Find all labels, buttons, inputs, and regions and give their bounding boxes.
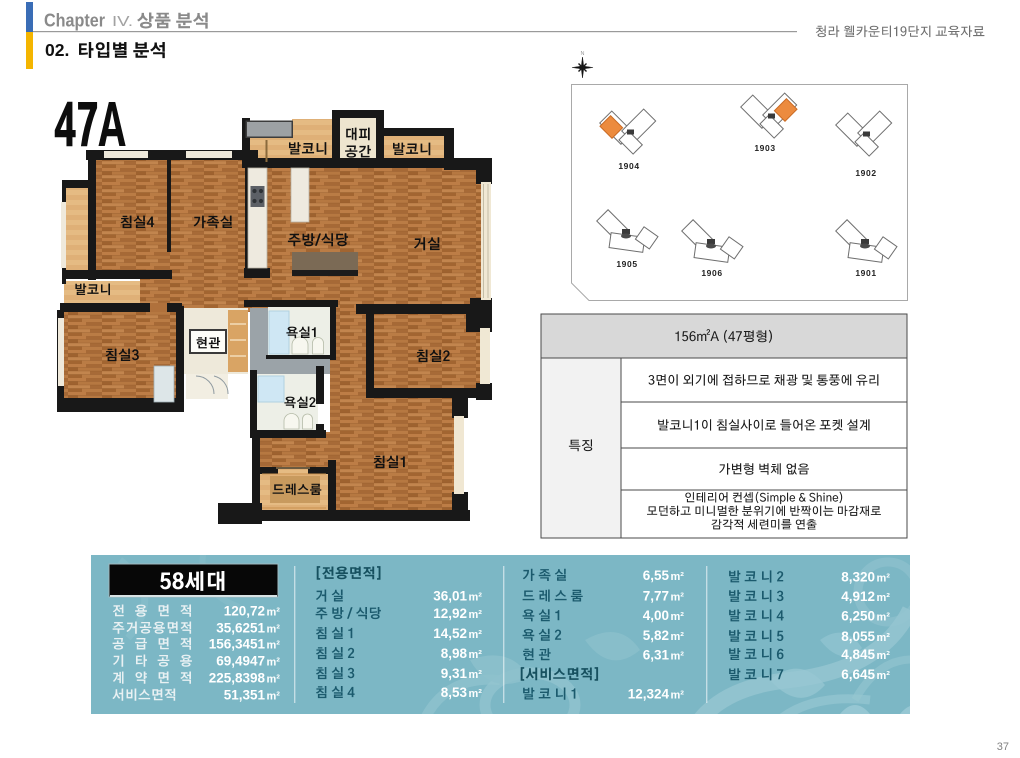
svg-text:IV.: IV. [112,13,133,30]
svg-text:m²: m² [671,571,685,583]
svg-text:m²: m² [671,631,685,643]
svg-text:m²: m² [877,650,891,662]
svg-text:1901: 1901 [855,268,876,278]
svg-text:m²: m² [469,688,483,700]
svg-text:m²: m² [877,670,891,682]
svg-text:1905: 1905 [616,259,637,269]
svg-text:12,92: 12,92 [433,606,467,621]
svg-text:m²: m² [877,611,891,623]
svg-text:36,01: 36,01 [433,589,467,604]
svg-text:m²: m² [469,669,483,681]
svg-text:35,6251: 35,6251 [216,621,265,636]
svg-text:4,912: 4,912 [841,589,875,604]
svg-text:6,645: 6,645 [841,667,875,682]
svg-text:m²: m² [469,592,483,604]
svg-text:12,324: 12,324 [628,687,670,702]
svg-text:1902: 1902 [855,168,876,178]
svg-text:m²: m² [267,657,281,669]
svg-text:8,320: 8,320 [841,569,875,584]
svg-text:8,055: 8,055 [841,629,875,644]
svg-text:156,3451: 156,3451 [209,637,266,652]
svg-text:m²: m² [671,592,685,604]
svg-text:8,98: 8,98 [441,646,468,661]
svg-text:Chapter: Chapter [44,10,105,31]
svg-text:14,52: 14,52 [433,626,467,641]
svg-text:m²: m² [469,649,483,661]
svg-text:4,00: 4,00 [643,608,669,623]
svg-text:69,4947: 69,4947 [216,654,265,669]
svg-text:m²: m² [877,592,891,604]
svg-text:m²: m² [267,691,281,703]
svg-text:6,250: 6,250 [841,608,875,623]
svg-text:1903: 1903 [754,143,775,153]
svg-text:m²: m² [267,624,281,636]
svg-text:120,72: 120,72 [224,604,265,619]
svg-text:m²: m² [469,609,483,621]
svg-text:51,351: 51,351 [224,688,266,703]
svg-text:6,31: 6,31 [643,647,670,662]
svg-text:N: N [581,51,585,57]
svg-text:m²: m² [877,632,891,644]
svg-text:6,55: 6,55 [643,568,670,583]
svg-text:5,82: 5,82 [643,628,669,643]
svg-text:4,845: 4,845 [841,647,875,662]
svg-text:m²: m² [267,674,281,686]
svg-text:225,8398: 225,8398 [209,671,266,686]
svg-text:37: 37 [997,741,1009,753]
svg-text:m²: m² [671,690,685,702]
svg-text:m²: m² [671,611,685,623]
svg-text:9,31: 9,31 [441,666,468,681]
svg-text:m²: m² [469,629,483,641]
svg-text:m²: m² [877,572,891,584]
svg-text:1906: 1906 [701,268,722,278]
svg-text:m²: m² [267,607,281,619]
svg-text:02.: 02. [45,40,69,60]
svg-text:m²: m² [671,650,685,662]
svg-text:1904: 1904 [618,161,639,171]
svg-text:7,77: 7,77 [643,589,669,604]
svg-text:m²: m² [267,640,281,652]
svg-text:8,53: 8,53 [441,685,468,700]
